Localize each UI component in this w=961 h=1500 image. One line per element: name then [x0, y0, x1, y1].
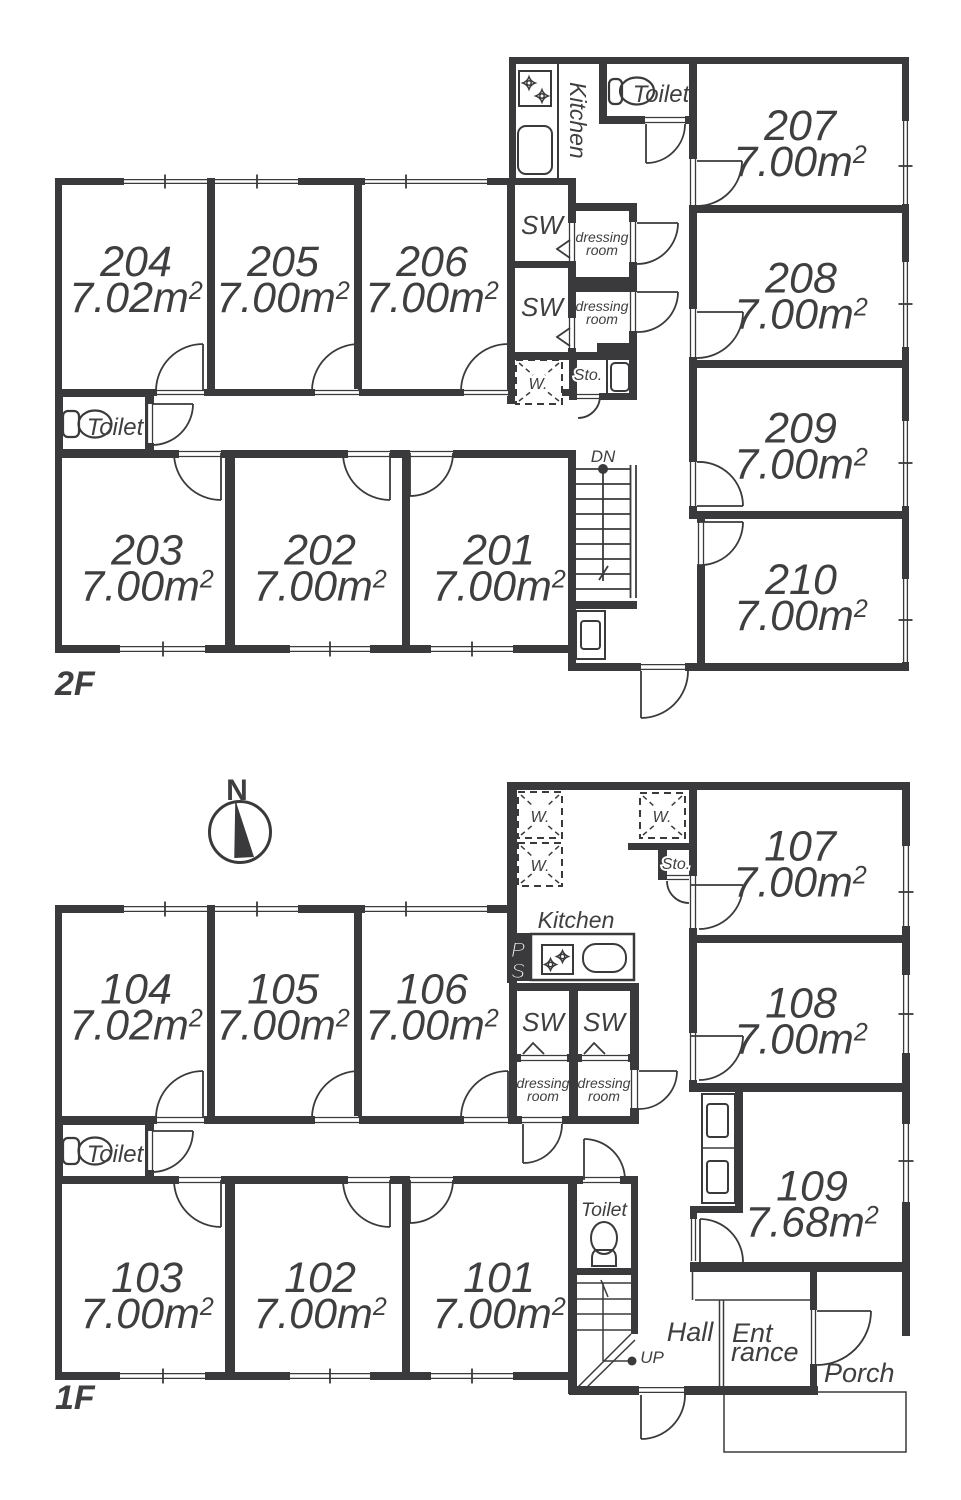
svg-text:room: room: [527, 1088, 559, 1104]
svg-text:7.00m2: 7.00m2: [253, 563, 387, 611]
svg-text:7.00m2: 7.00m2: [734, 441, 868, 489]
svg-text:Sto.: Sto.: [574, 367, 602, 384]
svg-text:Toilet: Toilet: [581, 1199, 628, 1221]
svg-text:7.00m2: 7.00m2: [365, 274, 499, 322]
svg-text:room: room: [586, 311, 618, 327]
svg-text:SW: SW: [521, 210, 565, 240]
svg-text:7.00m2: 7.00m2: [734, 291, 868, 339]
svg-text:DN: DN: [591, 447, 616, 466]
svg-text:Toilet: Toilet: [87, 1141, 145, 1168]
svg-text:7.00m2: 7.00m2: [733, 859, 867, 907]
svg-text:7.02m2: 7.02m2: [69, 1001, 203, 1049]
svg-text:room: room: [586, 242, 618, 258]
svg-text:7.00m2: 7.00m2: [253, 1290, 387, 1338]
svg-text:SW: SW: [521, 292, 565, 322]
svg-text:SW: SW: [522, 1007, 566, 1037]
svg-text:W.: W.: [531, 858, 550, 875]
svg-text:7.00m2: 7.00m2: [432, 563, 566, 611]
svg-text:S: S: [511, 960, 525, 983]
svg-text:Sto.: Sto.: [662, 856, 690, 873]
svg-text:7.00m2: 7.00m2: [80, 563, 214, 611]
svg-text:7.00m2: 7.00m2: [80, 1290, 214, 1338]
svg-text:SW: SW: [583, 1007, 627, 1037]
svg-text:7.00m2: 7.00m2: [432, 1290, 566, 1338]
svg-text:Kitchen: Kitchen: [538, 907, 615, 933]
svg-text:W.: W.: [529, 376, 548, 393]
svg-text:7.68m2: 7.68m2: [745, 1199, 879, 1247]
svg-text:rance: rance: [731, 1337, 799, 1367]
svg-text:room: room: [588, 1088, 620, 1104]
svg-text:7.00m2: 7.00m2: [216, 274, 350, 322]
svg-text:7.00m2: 7.00m2: [733, 138, 867, 186]
svg-text:7.00m2: 7.00m2: [216, 1001, 350, 1049]
svg-text:W.: W.: [531, 809, 550, 826]
svg-text:Toilet: Toilet: [87, 414, 145, 441]
svg-text:7.02m2: 7.02m2: [69, 274, 203, 322]
svg-text:7.00m2: 7.00m2: [365, 1001, 499, 1049]
svg-text:Hall: Hall: [667, 1317, 715, 1347]
svg-text:7.00m2: 7.00m2: [734, 1016, 868, 1064]
svg-text:UP: UP: [640, 1348, 664, 1367]
svg-text:2F: 2F: [54, 665, 96, 703]
svg-text:1F: 1F: [55, 1379, 96, 1417]
svg-text:Kitchen: Kitchen: [565, 82, 591, 159]
svg-text:7.00m2: 7.00m2: [734, 592, 868, 640]
svg-text:Toilet: Toilet: [633, 81, 691, 108]
svg-text:Porch: Porch: [824, 1358, 895, 1388]
svg-text:W.: W.: [653, 809, 672, 826]
svg-text:P: P: [511, 939, 525, 962]
